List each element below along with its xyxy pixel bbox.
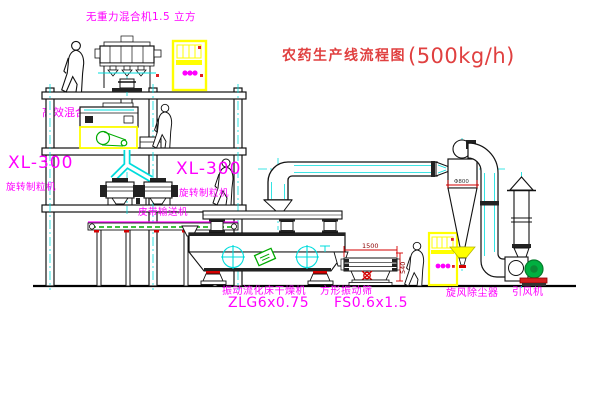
granulator-right-icon xyxy=(136,178,178,205)
title-capacity: (500kg/h) xyxy=(408,44,515,68)
label-sieve-model: FS0.6x1.5 xyxy=(334,296,408,310)
cabinet-buttons xyxy=(182,70,197,75)
cad-diagram-stage: 高效混合机3.5立方 xyxy=(0,0,600,403)
label-dryer-model: ZLG6x0.75 xyxy=(228,296,309,310)
dim-sieve-height: 540 xyxy=(399,262,407,274)
gravity-free-mixer-icon xyxy=(95,36,161,92)
exhaust-stack-icon xyxy=(507,177,536,257)
cabinet-buttons xyxy=(436,264,451,269)
title-text: 农药生产线流程图 xyxy=(282,45,406,68)
control-cabinet-2 xyxy=(429,233,457,285)
label-cyclone: 旋风除尘器 xyxy=(446,289,499,299)
label-fan: 引风机 xyxy=(512,288,544,298)
induced-draft-fan-icon xyxy=(505,257,547,286)
granulator-left-icon xyxy=(100,178,140,205)
label-granulator-left-model: XL-300 xyxy=(8,155,73,172)
label-granulator-mid-name: 旋转制粒机 xyxy=(179,189,229,199)
label-granulator-mid-model: XL-300 xyxy=(176,161,241,178)
label-top-mixer: 无重力混合机1.5 立方 xyxy=(86,12,196,23)
overhead-duct xyxy=(268,161,437,200)
label-granulator-left-name: 旋转制粒机 xyxy=(6,183,56,193)
dim-sieve-length: 1500 xyxy=(362,242,379,250)
dim-cyclone-diameter: Φ800 xyxy=(454,179,469,185)
diagram-title: 农药生产线流程图 (500kg/h) xyxy=(282,44,515,68)
control-cabinet-1 xyxy=(173,41,206,90)
worker-icon xyxy=(62,41,84,92)
label-belt-conveyor: 皮带输送机 xyxy=(138,208,188,218)
worker-icon xyxy=(405,242,424,286)
vibrating-sieve-icon xyxy=(341,258,400,285)
